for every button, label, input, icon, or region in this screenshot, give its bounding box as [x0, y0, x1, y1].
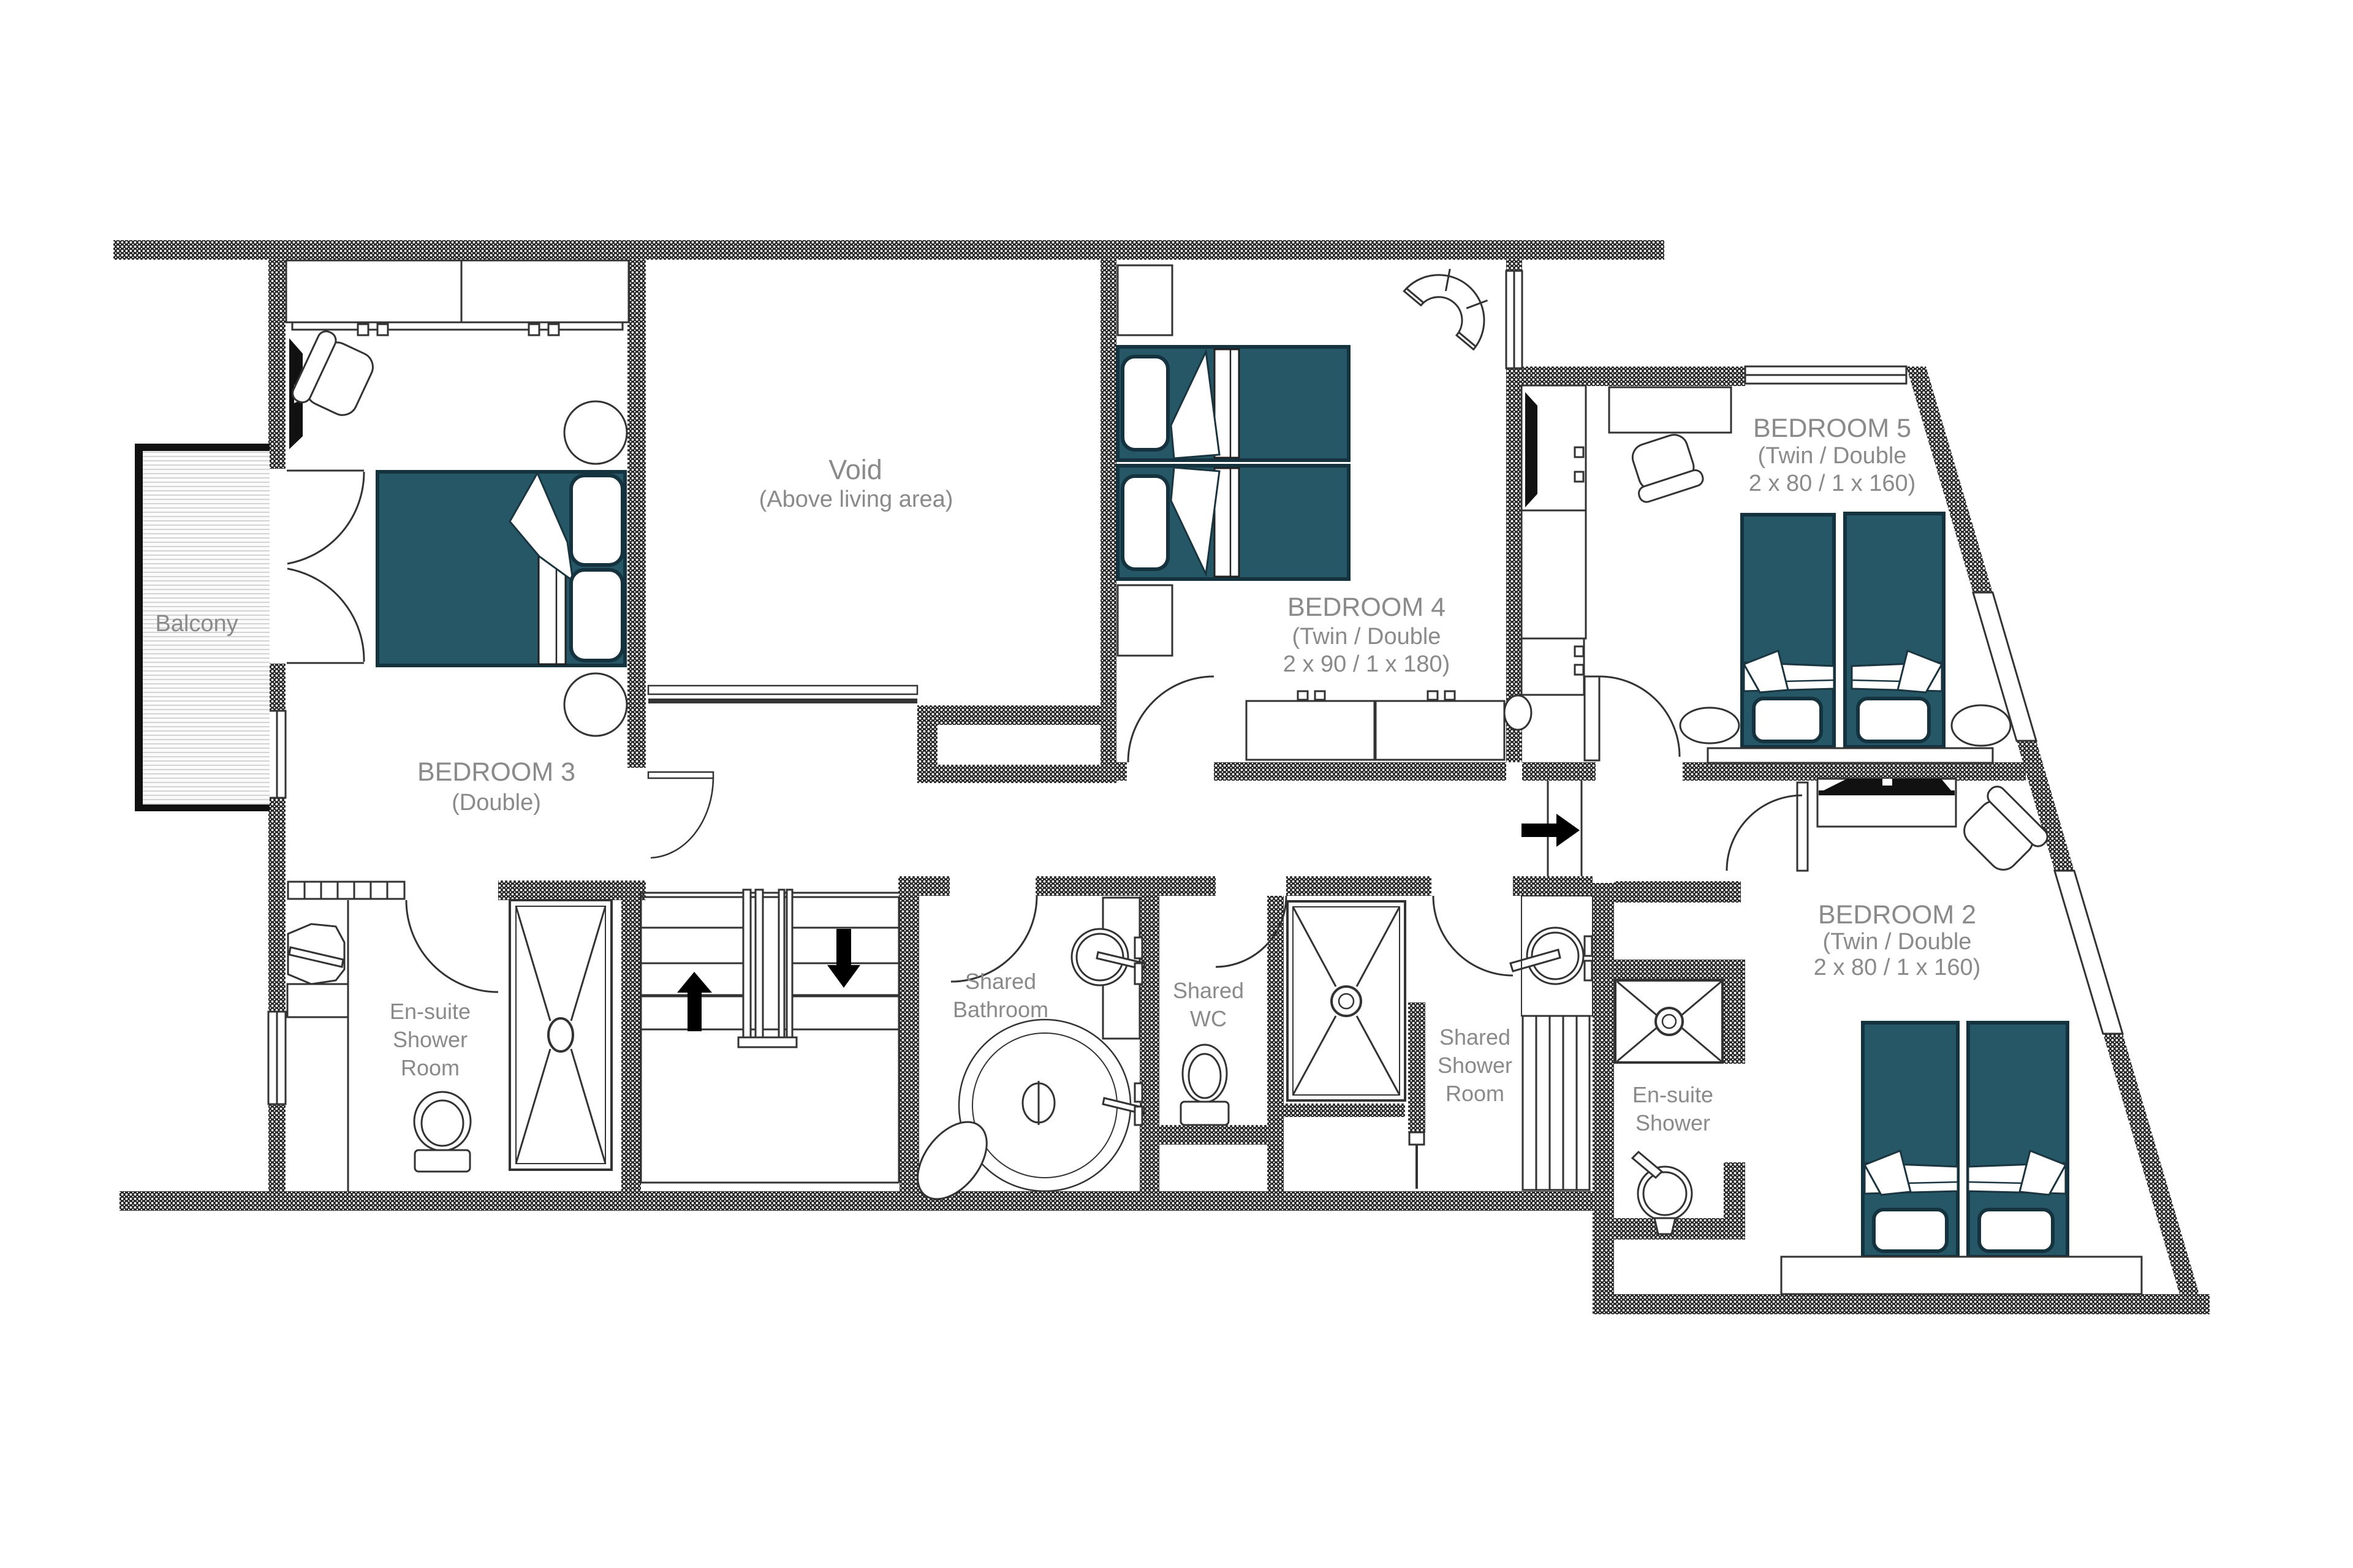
svg-text:Shower: Shower: [1635, 1110, 1710, 1135]
svg-text:Balcony: Balcony: [155, 611, 238, 637]
svg-text:(Double): (Double): [452, 790, 541, 816]
svg-text:(Above living area): (Above living area): [759, 487, 953, 512]
svg-text:Bathroom: Bathroom: [953, 997, 1048, 1022]
svg-text:BEDROOM 3: BEDROOM 3: [417, 757, 575, 787]
svg-text:En-suite: En-suite: [1632, 1082, 1713, 1107]
svg-text:Shower: Shower: [393, 1027, 468, 1052]
svg-text:Room: Room: [401, 1055, 460, 1080]
svg-text:Room: Room: [1446, 1081, 1504, 1106]
svg-text:Shared: Shared: [1173, 978, 1244, 1003]
svg-text:2 x 90 / 1 x 180): 2 x 90 / 1 x 180): [1283, 651, 1450, 677]
svg-text:Shared: Shared: [965, 969, 1036, 994]
svg-text:BEDROOM 4: BEDROOM 4: [1287, 593, 1446, 622]
svg-text:WC: WC: [1190, 1006, 1227, 1031]
svg-text:(Twin / Double: (Twin / Double: [1823, 929, 1972, 955]
svg-text:BEDROOM 5: BEDROOM 5: [1753, 414, 1911, 443]
svg-text:(Twin / Double: (Twin / Double: [1758, 443, 1907, 469]
svg-text:2 x 80 / 1 x 160): 2 x 80 / 1 x 160): [1749, 471, 1916, 496]
svg-text:(Twin / Double: (Twin / Double: [1292, 624, 1441, 650]
svg-text:BEDROOM 2: BEDROOM 2: [1818, 900, 1976, 930]
svg-text:Shared: Shared: [1439, 1025, 1510, 1050]
svg-text:Shower: Shower: [1438, 1053, 1512, 1078]
svg-text:2 x 80 / 1 x 160): 2 x 80 / 1 x 160): [1814, 955, 1981, 980]
svg-text:Void: Void: [828, 454, 882, 485]
svg-text:En-suite: En-suite: [390, 999, 471, 1024]
